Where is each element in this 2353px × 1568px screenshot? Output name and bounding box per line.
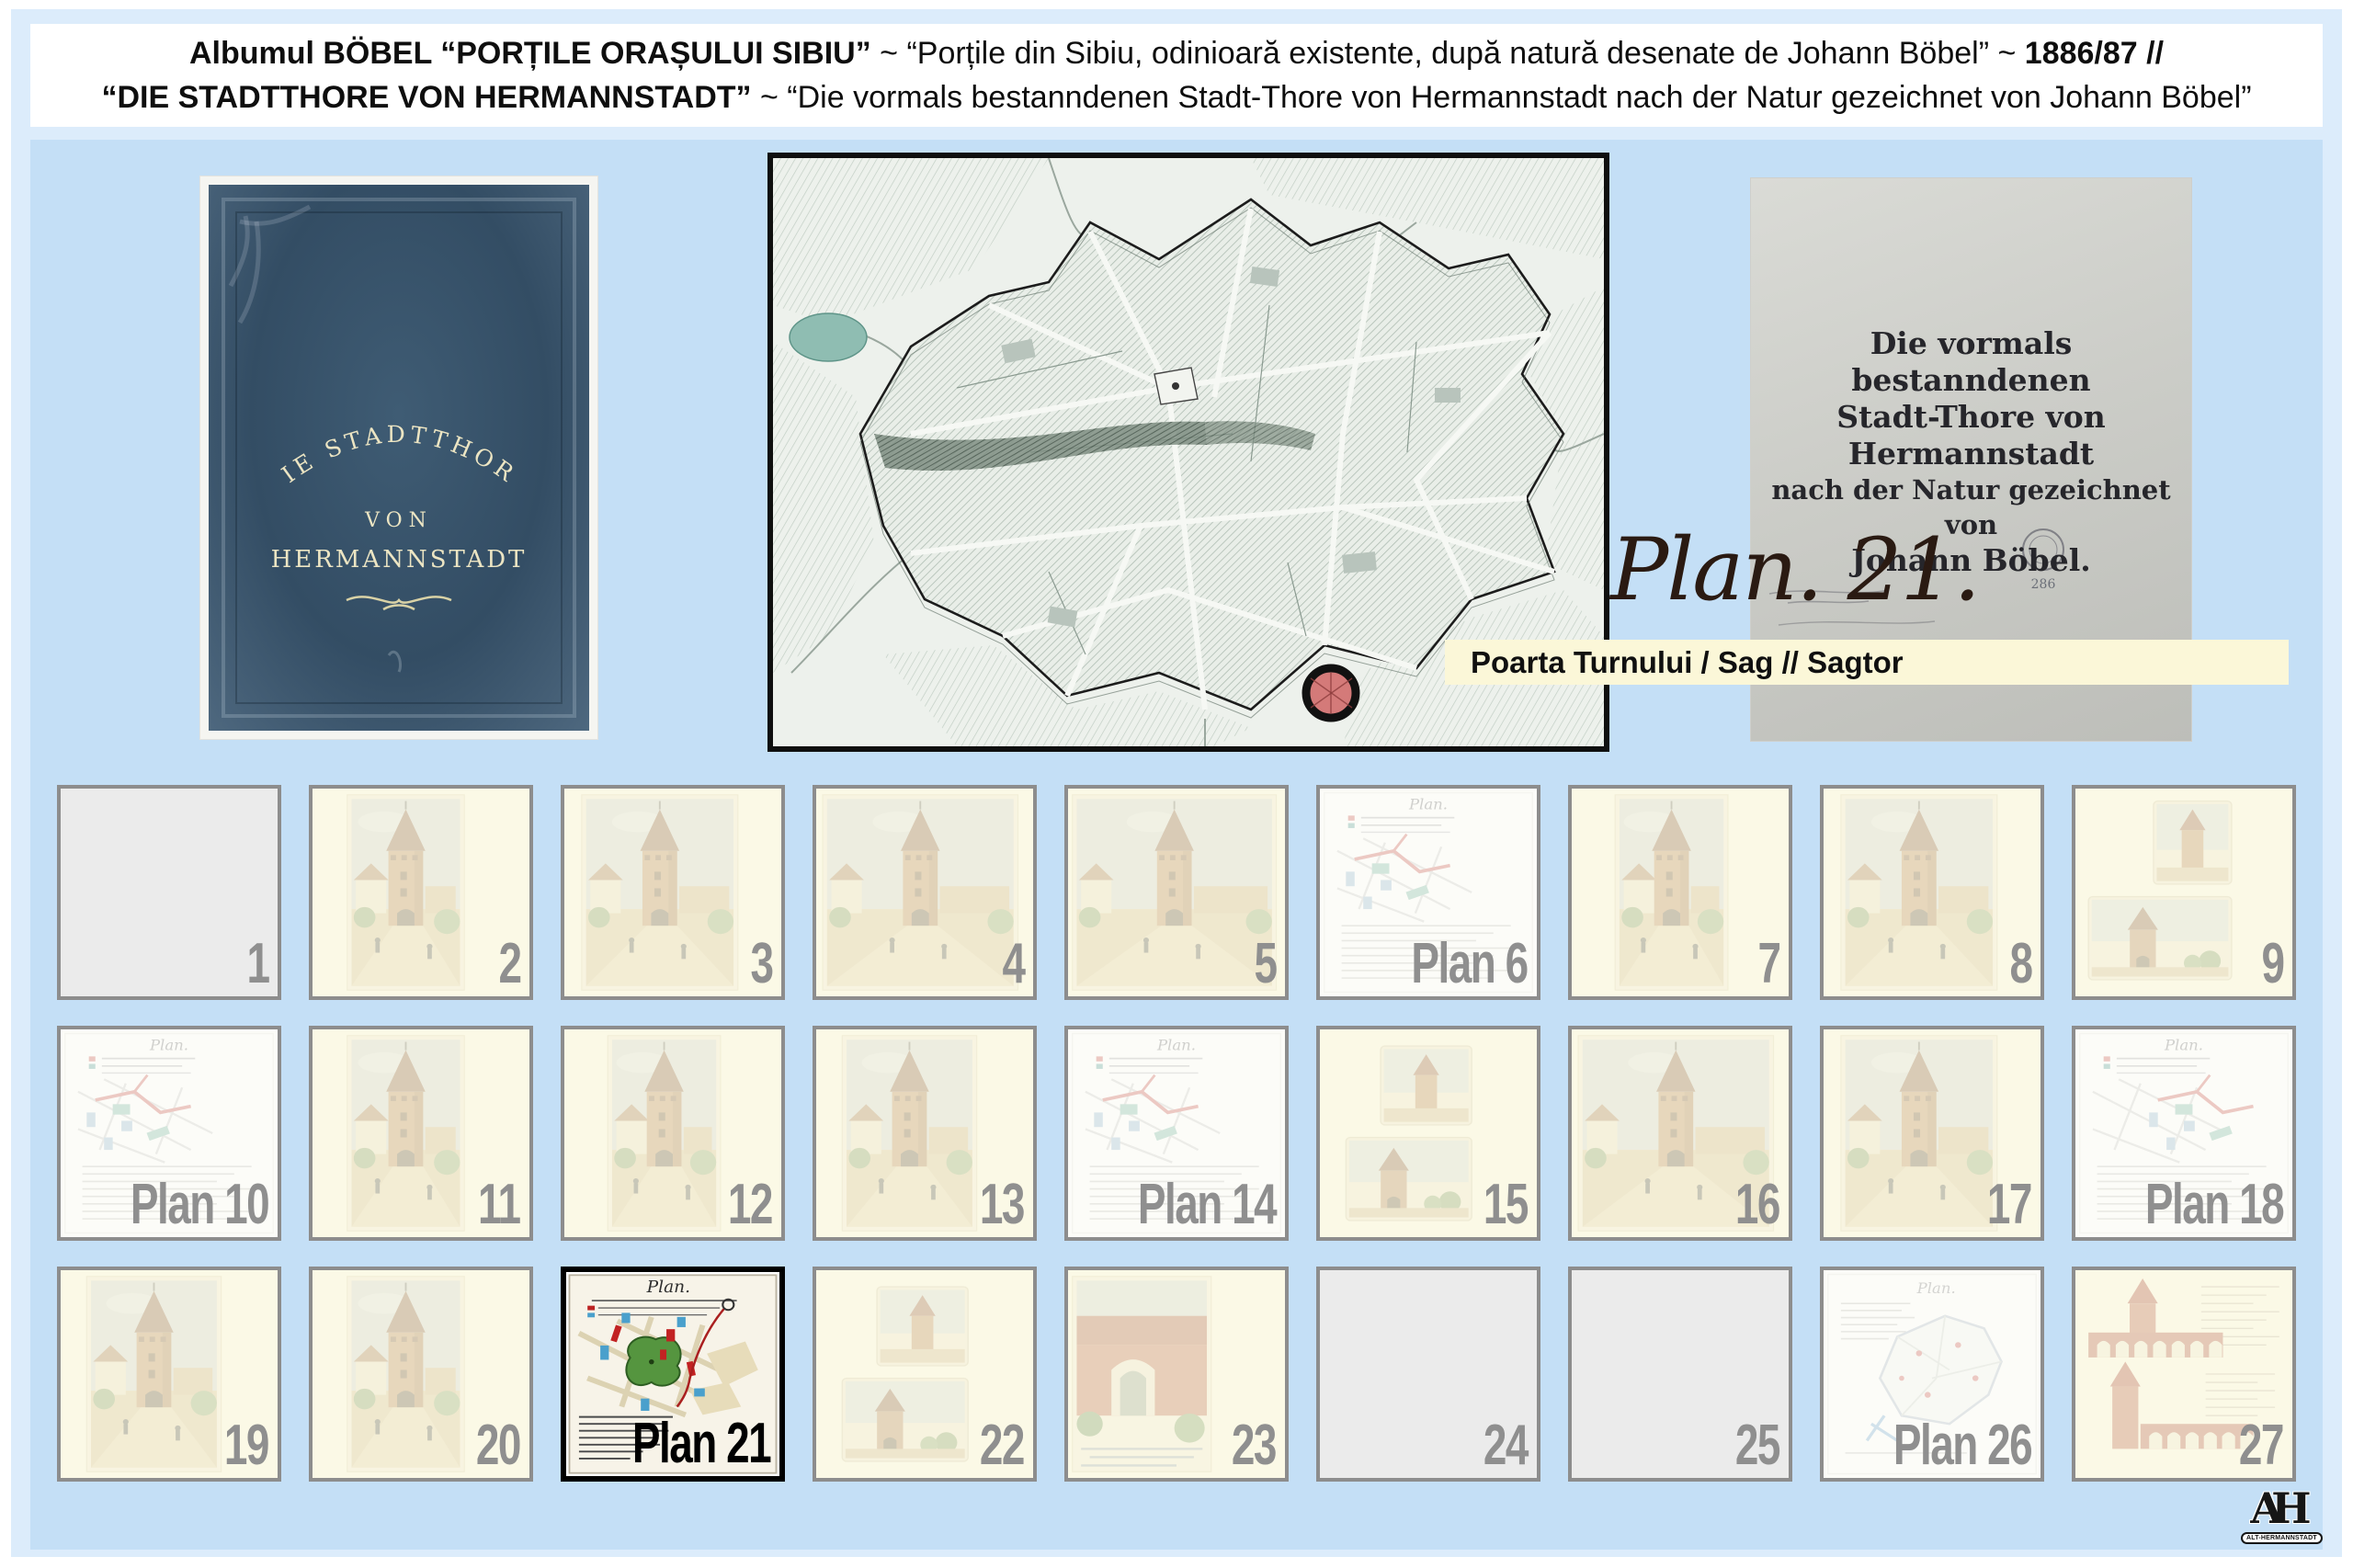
header-line-2: “DIE STADTTHORE VON HERMANNSTADT” ~ “Die… [30,75,2323,119]
thumbnail-12[interactable]: 12 [561,1026,785,1241]
thumbnail-number: 25 [1735,1417,1779,1474]
thumbnail-19[interactable]: 19 [57,1267,281,1482]
thumbnail-number: Plan 26 [1893,1417,2031,1474]
thumbnail-27[interactable]: 27 [2072,1267,2296,1482]
thumbnail-image [1572,789,1789,996]
thumbnail-number: 16 [1735,1176,1779,1233]
thumbnail-6[interactable]: Plan.Plan 6 [1316,785,1540,1000]
title-page-text: Die vormals bestanndenen Stadt-Thore von… [1751,325,2191,579]
thumbnail-number: 8 [2009,936,2031,993]
thumbnail-20[interactable]: 20 [309,1267,533,1482]
thumbnail-22[interactable]: 22 [813,1267,1037,1482]
thumbnail-number: 5 [1254,936,1276,993]
thumbnail-number: 3 [750,936,772,993]
thumbnail-26[interactable]: Plan.Plan 26 [1820,1267,2044,1482]
cover-flourish [347,597,451,609]
site-logo: AH ALT-HERMANNSTADT [2241,1489,2309,1544]
thumbnail-number: Plan 6 [1412,936,1528,993]
svg-text:Plan.: Plan. [1156,1037,1196,1054]
thumbnail-14[interactable]: Plan.Plan 14 [1064,1026,1289,1241]
thumbnail-image [61,789,278,996]
thumbnail-number: 9 [2261,936,2283,993]
thumbnail-13[interactable]: 13 [813,1026,1037,1241]
thumbnail-25[interactable]: 25 [1568,1267,1792,1482]
plan-prefix: Plan [2145,1173,2239,1236]
svg-text:Plan.: Plan. [149,1037,188,1054]
title-page-line: Johann Böbel. [1751,542,2191,579]
thumbnail-number: 20 [476,1417,520,1474]
thumbnail-11[interactable]: 11 [309,1026,533,1241]
thumbnail-number: 23 [1232,1417,1276,1474]
thumbnail-9[interactable]: 9 [2072,785,2296,1000]
thumbnail-18[interactable]: Plan.Plan 18 [2072,1026,2296,1241]
title-page-line: Stadt-Thore von Hermannstadt [1751,399,2191,472]
thumbnail-number: Plan 21 [632,1415,770,1472]
thumbnail-number: 24 [1483,1417,1528,1474]
thumbnail-image [313,789,529,996]
thumbnail-15[interactable]: 15 [1316,1026,1540,1241]
plan-prefix: Plan [1138,1173,1232,1236]
book-cover-photo: DIE STADTTHORE VON HERMANNSTADT [200,176,597,739]
plan-prefix: Plan [632,1412,726,1475]
gate-name-bar: Poarta Turnului / Sag // Sagtor [1445,640,2289,685]
svg-text:Plan.: Plan. [646,1278,690,1298]
page-header: Albumul BÖBEL “PORȚILE ORAȘULUI SIBIU” ~… [30,24,2323,127]
thumbnail-number: 2 [498,936,520,993]
thumbnail-2[interactable]: 2 [309,785,533,1000]
thumbnail-number: Plan 10 [131,1176,268,1233]
thumbnail-17[interactable]: 17 [1820,1026,2044,1241]
thumbnail-image [1068,789,1285,996]
thumbnail-number: 7 [1757,936,1779,993]
thumbnail-5[interactable]: 5 [1064,785,1289,1000]
thumbnail-3[interactable]: 3 [561,785,785,1000]
thumbnail-number: 22 [980,1417,1024,1474]
plan-prefix: Plan [1412,932,1506,995]
svg-text:Plan.: Plan. [2164,1037,2203,1054]
thumbnail-number: 4 [1002,936,1024,993]
thumbnail-image [564,789,781,996]
thumbnail-image [2075,789,2292,996]
logo-badge: ALT-HERMANNSTADT [2241,1532,2323,1544]
thumbnail-number: 27 [2239,1417,2283,1474]
title-page-line: Die vormals bestanndenen [1751,325,2191,399]
thumbnail-number: 17 [1987,1176,2031,1233]
plan-prefix: Plan [131,1173,224,1236]
thumbnail-image [816,789,1033,996]
thumbnail-21[interactable]: Plan.Plan 21 [561,1267,785,1482]
thumbnail-number: 15 [1483,1176,1528,1233]
thumbnail-23[interactable]: 23 [1064,1267,1289,1482]
thumbnail-10[interactable]: Plan.Plan 10 [57,1026,281,1241]
svg-text:Plan.: Plan. [1408,796,1448,813]
header-line-1: Albumul BÖBEL “PORȚILE ORAȘULUI SIBIU” ~… [30,31,2323,75]
thumbnail-number: Plan 14 [1138,1176,1276,1233]
thumbnail-number: 12 [728,1176,772,1233]
thumbnail-8[interactable]: 8 [1820,785,2044,1000]
thumbnail-number: 11 [478,1176,520,1233]
logo-monogram: AH [2241,1489,2309,1528]
thumbnail-4[interactable]: 4 [813,785,1037,1000]
book-cover-decor: DIE STADTTHORE VON HERMANNSTADT [209,185,589,731]
title-page-line: nach der Natur gezeichnet von [1751,472,2191,542]
plan-prefix: Plan [1893,1414,1987,1477]
thumbnail-24[interactable]: 24 [1316,1267,1540,1482]
thumbnail-number: 13 [980,1176,1024,1233]
book-cover: DIE STADTTHORE VON HERMANNSTADT [209,185,589,731]
cover-von-text: VON [364,509,433,532]
thumbnail-grid: 12345Plan.Plan 6789Plan.Plan 10111213Pla… [57,785,2296,1482]
stamp-number: 286 [2031,577,2056,592]
thumbnail-1[interactable]: 1 [57,785,281,1000]
thumbnail-number: Plan 18 [2145,1176,2283,1233]
gate-name-label: Poarta Turnului / Sag // Sagtor [1471,645,1904,680]
thumbnail-16[interactable]: 16 [1568,1026,1792,1241]
cover-city-text: HERMANNSTADT [271,546,528,574]
thumbnail-number: 19 [224,1417,268,1474]
thumbnail-number: 1 [246,936,268,993]
thumbnail-7[interactable]: 7 [1568,785,1792,1000]
thumbnail-image [1824,789,2040,996]
svg-text:Plan.: Plan. [1916,1279,1956,1297]
